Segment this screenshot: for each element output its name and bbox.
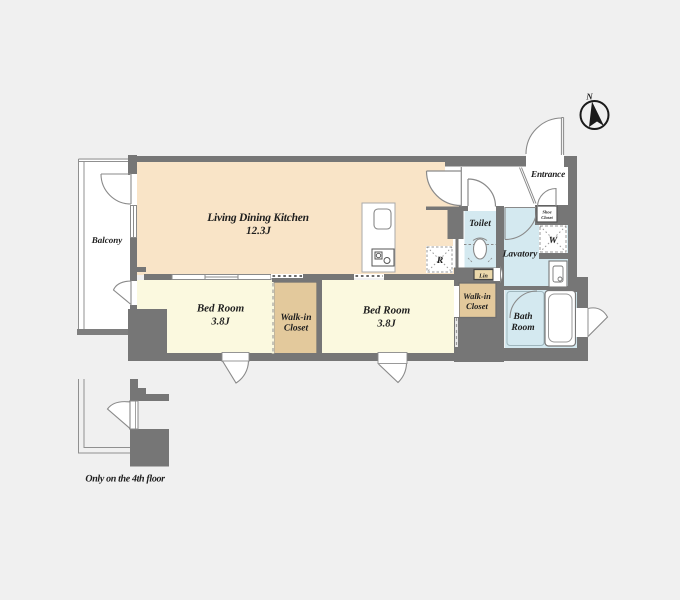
svg-text:Bed Room: Bed Room	[362, 305, 411, 317]
svg-text:Closet: Closet	[466, 301, 488, 311]
svg-text:Closet: Closet	[541, 215, 553, 220]
svg-text:Bed Room: Bed Room	[196, 303, 245, 315]
svg-text:Lin: Lin	[478, 273, 488, 280]
svg-text:Walk-in: Walk-in	[281, 313, 312, 323]
svg-text:3.8J: 3.8J	[210, 317, 230, 328]
svg-text:Walk-in: Walk-in	[463, 291, 491, 301]
svg-text:Toilet: Toilet	[469, 219, 491, 229]
svg-text:R: R	[436, 256, 443, 266]
svg-text:Lavatory: Lavatory	[502, 250, 539, 260]
svg-text:N: N	[585, 92, 593, 102]
svg-text:12.3J: 12.3J	[246, 225, 271, 237]
svg-text:Room: Room	[510, 323, 534, 333]
svg-text:3.8J: 3.8J	[376, 319, 396, 330]
svg-text:Living Dining Kitchen: Living Dining Kitchen	[206, 212, 308, 224]
svg-text:Closet: Closet	[284, 324, 309, 334]
svg-text:Shoe: Shoe	[542, 210, 551, 215]
svg-text:Balcony: Balcony	[91, 235, 124, 245]
svg-text:Only on the 4th floor: Only on the 4th floor	[85, 474, 165, 485]
svg-text:Bath: Bath	[512, 312, 532, 322]
svg-text:Entrance: Entrance	[530, 169, 565, 179]
svg-text:W: W	[549, 236, 558, 246]
